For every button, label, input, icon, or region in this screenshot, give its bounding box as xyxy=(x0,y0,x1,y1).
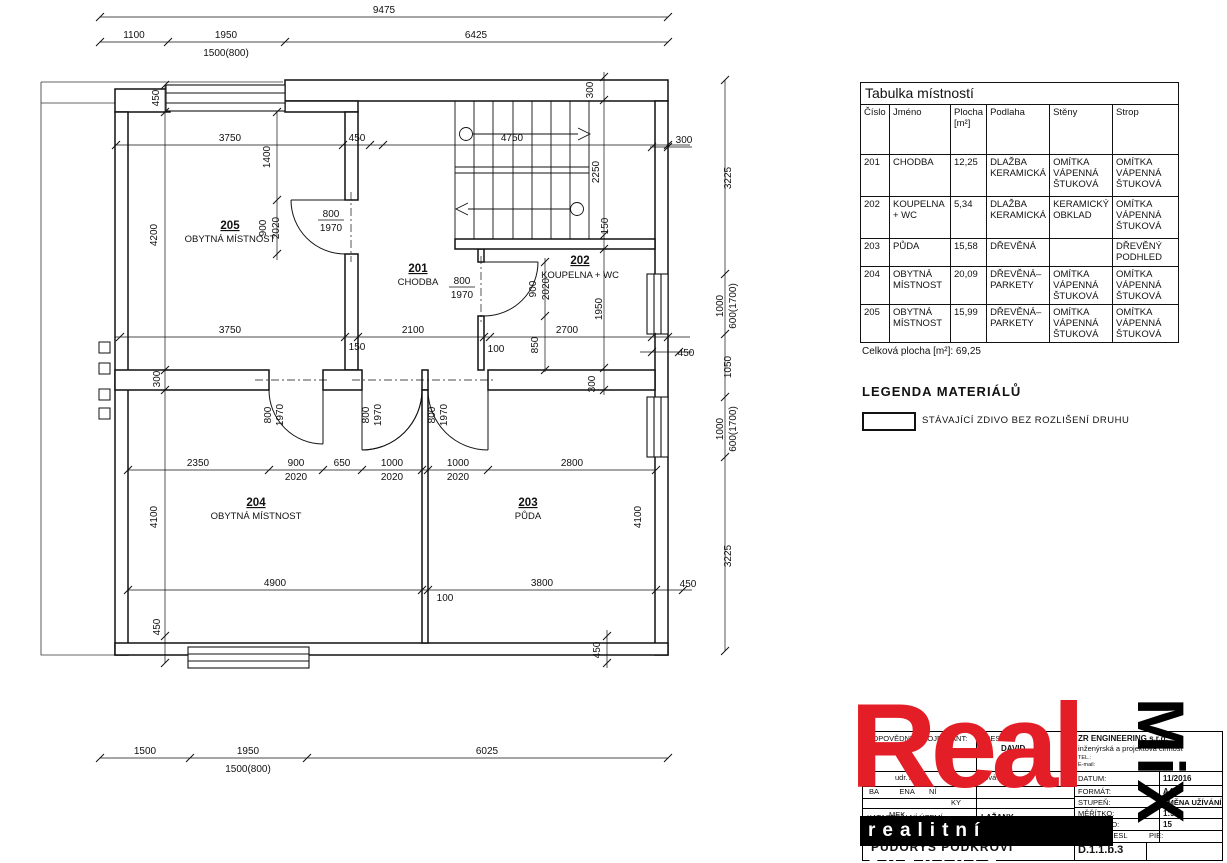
cell: OMÍTKA VÁPENNÁ ŠTUKOVÁ xyxy=(1113,197,1179,239)
room-name-202: KOUPELNA + WC xyxy=(541,270,619,281)
room-number-201: 201 xyxy=(408,263,428,275)
cell: 5,34 xyxy=(951,197,987,239)
legend-swatch-existing-masonry xyxy=(862,412,916,431)
dim-label: 300 xyxy=(587,375,598,392)
dim-label: 4100 xyxy=(633,505,644,528)
dim-label: 1050 xyxy=(723,355,734,378)
dim-label: 1000 xyxy=(381,458,404,469)
dim-label: 1970 xyxy=(373,403,384,426)
dim-label: 600(1700) xyxy=(728,406,739,452)
agency-logo-mix-mark: MiX xyxy=(1131,698,1190,827)
cell: OMÍTKA VÁPENNÁ ŠTUKOVÁ xyxy=(1050,305,1113,343)
room-number-203: 203 xyxy=(518,497,537,509)
dim-label: 1500(800) xyxy=(225,764,271,775)
dim-label: 4100 xyxy=(149,505,160,528)
dim-label: 300 xyxy=(152,370,163,387)
cell: 205 xyxy=(861,305,890,343)
cell: 202 xyxy=(861,197,890,239)
dim-label: 6425 xyxy=(465,30,488,41)
col-cislo: Číslo xyxy=(861,105,890,155)
agency-logo-wordmark: Real xyxy=(850,686,1079,806)
cell: 203 xyxy=(861,239,890,267)
dim-label: 3800 xyxy=(531,578,554,589)
dim-label: 3225 xyxy=(723,544,734,567)
dim-label: 900 xyxy=(528,280,539,297)
cell: CHODBA xyxy=(890,155,951,197)
room-name-205: OBYTNÁ MÍSTNOST xyxy=(185,234,276,245)
dim-label: 800 xyxy=(427,406,438,423)
cell: 20,09 xyxy=(951,267,987,305)
company-tel: TEL.: xyxy=(1078,755,1091,761)
col-strop: Strop xyxy=(1113,105,1179,155)
cell: DŘEVĚNÁ– PARKETY xyxy=(987,305,1050,343)
copy-label-2: PIE: xyxy=(1149,831,1163,840)
dim-label: 3225 xyxy=(723,166,734,189)
col-steny: Stěny xyxy=(1050,105,1113,155)
format-label: FORMÁT: xyxy=(1078,787,1111,796)
dim-label: 450 xyxy=(151,89,162,106)
dim-label: 1000 xyxy=(715,294,726,317)
col-jmeno: Jméno xyxy=(890,105,951,155)
table-row: 203 PŮDA 15,58 DŘEVĚNÁ DŘEVĚNÝ PODHLED xyxy=(861,239,1179,267)
cell: OBYTNÁ MÍSTNOST xyxy=(890,305,951,343)
cell: DŘEVĚNÝ PODHLED xyxy=(1113,239,1179,267)
cell: DŘEVĚNÁ xyxy=(987,239,1050,267)
walls xyxy=(115,80,668,655)
dim-label: 2020 xyxy=(447,472,470,483)
cell: OMÍTKA VÁPENNÁ ŠTUKOVÁ xyxy=(1050,267,1113,305)
cell: 12,25 xyxy=(951,155,987,197)
dim-label: 1970 xyxy=(275,403,286,426)
dim-label: 450 xyxy=(349,133,366,144)
dim-label: 450 xyxy=(680,579,697,590)
dim-label: 4200 xyxy=(149,223,160,246)
dim-label: 2100 xyxy=(402,325,425,336)
table-row: 205 OBYTNÁ MÍSTNOST 15,99 DŘEVĚNÁ– PARKE… xyxy=(861,305,1179,343)
cell: 15,58 xyxy=(951,239,987,267)
dim-label: 2020 xyxy=(285,472,308,483)
cell: OBYTNÁ MÍSTNOST xyxy=(890,267,951,305)
dim-label: 800 xyxy=(361,406,372,423)
dim-label: 800 xyxy=(323,209,340,220)
dim-label: 600(1700) xyxy=(728,283,739,329)
dim-label: 1970 xyxy=(439,403,450,426)
dim-label: 450 xyxy=(152,618,163,635)
room-number-205: 205 xyxy=(220,220,240,232)
dim-label: 300 xyxy=(676,135,693,146)
dim-label: 2020 xyxy=(381,472,404,483)
cell: 204 xyxy=(861,267,890,305)
adjacent-structure-outline xyxy=(41,82,283,655)
stage-label: STUPEŇ: xyxy=(1078,798,1111,807)
dim-label: 1500 xyxy=(134,746,157,757)
dim-label: 2350 xyxy=(187,458,210,469)
dim-label: 1950 xyxy=(594,297,605,320)
cell: 15,99 xyxy=(951,305,987,343)
dim-label: 3750 xyxy=(219,325,242,336)
room-table-header: Číslo Jméno Plocha [m²] Podlaha Stěny St… xyxy=(861,105,1179,155)
cell: DLAŽBA KERAMICKÁ xyxy=(987,155,1050,197)
room-name-204: OBYTNÁ MÍSTNOST xyxy=(211,511,302,522)
dim-label: 1970 xyxy=(451,290,474,301)
room-number-204: 204 xyxy=(246,497,266,509)
cell: OMÍTKA VÁPENNÁ ŠTUKOVÁ xyxy=(1113,267,1179,305)
dim-label: 450 xyxy=(678,348,695,359)
dim-label: 1100 xyxy=(123,30,145,41)
cell: KERAMICKÝ OBKLAD xyxy=(1050,197,1113,239)
floor-plan: 9475 1100 1950 1500(800) 6425 450 3750 1… xyxy=(0,0,800,800)
agency-logo-tagline: realitní agentura xyxy=(860,816,1113,846)
cell: OMÍTKA VÁPENNÁ ŠTUKOVÁ xyxy=(1050,155,1113,197)
dim-label: 1400 xyxy=(262,145,273,168)
dim-label: 100 xyxy=(488,344,505,355)
cell: KOUPELNA + WC xyxy=(890,197,951,239)
room-name-203: PŮDA xyxy=(515,510,542,522)
room-number-202: 202 xyxy=(570,255,589,267)
dim-label: 1500(800) xyxy=(203,48,249,59)
company-email: E-mail: xyxy=(1078,762,1095,768)
table-row: 204 OBYTNÁ MÍSTNOST 20,09 DŘEVĚNÁ– PARKE… xyxy=(861,267,1179,305)
dim-label: 650 xyxy=(334,458,351,469)
cell: PŮDA xyxy=(890,239,951,267)
dim-label: 150 xyxy=(600,217,611,234)
table-row: 201 CHODBA 12,25 DLAŽBA KERAMICKÁ OMÍTKA… xyxy=(861,155,1179,197)
cell: 201 xyxy=(861,155,890,197)
drawing-sheet: 9475 1100 1950 1500(800) 6425 450 3750 1… xyxy=(0,0,1227,863)
room-table-title: Tabulka místností xyxy=(861,83,1179,105)
cell: DŘEVĚNÁ– PARKETY xyxy=(987,267,1050,305)
dim-label: 6025 xyxy=(476,746,499,757)
total-area: Celková plocha [m²]: 69,25 xyxy=(862,346,981,357)
dim-label: 800 xyxy=(454,276,471,287)
col-plocha: Plocha [m²] xyxy=(951,105,987,155)
dim-label: 1000 xyxy=(715,417,726,440)
dim-label: 3750 xyxy=(219,133,242,144)
legend-title: LEGENDA MATERIÁLŮ xyxy=(862,384,1021,399)
dim-label: 300 xyxy=(585,81,596,98)
dim-label: 850 xyxy=(530,336,541,353)
cell: OMÍTKA VÁPENNÁ ŠTUKOVÁ xyxy=(1113,305,1179,343)
cell: OMÍTKA VÁPENNÁ ŠTUKOVÁ xyxy=(1113,155,1179,197)
room-name-201: CHODBA xyxy=(398,277,439,288)
table-row: 202 KOUPELNA + WC 5,34 DLAŽBA KERAMICKÁ … xyxy=(861,197,1179,239)
dim-label: 2250 xyxy=(591,160,602,183)
chimney-flues xyxy=(99,342,110,419)
col-podlaha: Podlaha xyxy=(987,105,1050,155)
dim-label: 1950 xyxy=(215,30,238,41)
dim-label: 2700 xyxy=(556,325,579,336)
dim-label: 100 xyxy=(437,593,454,604)
dim-label: 450 xyxy=(592,641,603,658)
dim-label: 1950 xyxy=(237,746,260,757)
staircase xyxy=(455,101,590,239)
dim-label: 4750 xyxy=(501,133,524,144)
dim-label: 1000 xyxy=(447,458,470,469)
room-table: Tabulka místností Číslo Jméno Plocha [m²… xyxy=(860,82,1179,343)
date-label: DATUM: xyxy=(1078,774,1106,783)
cell: DLAŽBA KERAMICKÁ xyxy=(987,197,1050,239)
cell xyxy=(1050,239,1113,267)
dim-label: 800 xyxy=(263,406,274,423)
dim-label: 150 xyxy=(349,342,366,353)
dim-label: 9475 xyxy=(373,5,396,16)
dim-label: 2800 xyxy=(561,458,584,469)
dim-label: 900 xyxy=(288,458,305,469)
legend-item-label: STÁVAJÍCÍ ZDIVO BEZ ROZLIŠENÍ DRUHU xyxy=(922,415,1129,426)
dim-label: 1970 xyxy=(320,223,343,234)
dim-label: 4900 xyxy=(264,578,287,589)
